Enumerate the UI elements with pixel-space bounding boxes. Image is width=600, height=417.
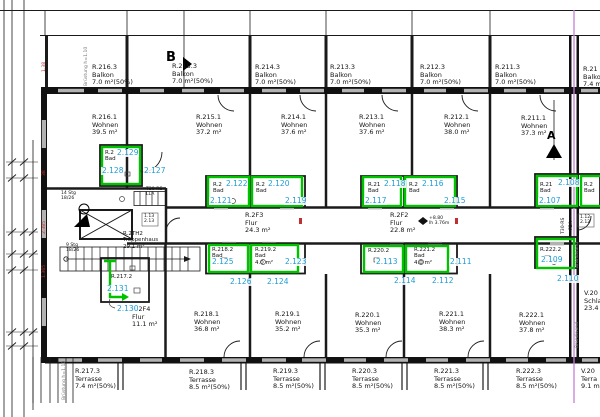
door-label-1-12: 1.122.12	[580, 215, 590, 225]
dimension-text: 38	[42, 170, 47, 176]
bath-label-r216: R.2Bad	[105, 150, 116, 163]
room-label-v-terrasse: V.20Terra9.1 m	[581, 368, 600, 391]
room-label-r222-3: R.222.3Terrasse8.5 m²(50%)	[516, 368, 557, 391]
room-label-r219-3: R.219.3Terrasse8.5 m²(50%)	[273, 368, 314, 391]
tag-2-116[interactable]: 2.116	[421, 180, 444, 188]
tag-2-131[interactable]: 2.131	[106, 285, 129, 293]
tag-2-118[interactable]: 2.118	[383, 180, 406, 188]
room-label-r215-1: R.215.1Wohnen37.2 m²	[196, 114, 222, 137]
tag-2-126[interactable]: 2.126	[229, 278, 252, 286]
room-label-r221-1: R.221.1Wohnen38.3 m²	[439, 311, 465, 334]
room-label-r213-3: R.213.3Balkon7.0 m²(50%)	[330, 64, 371, 87]
room-label-r221-3: R.221.3Terrasse8.5 m²(50%)	[434, 368, 475, 391]
tag-2-130[interactable]: 2.130	[116, 305, 139, 313]
bath-label-r221-2: R.221.2Bad4.0 m²	[414, 247, 435, 266]
tag-2-115[interactable]: 2.115	[443, 197, 466, 205]
bath-label-right-top: R.21Bad	[540, 182, 552, 195]
room-label-r216-3: R.216.3Balkon7.0 m²(50%)	[92, 64, 133, 87]
highlight-arrow-2131[interactable]	[122, 293, 129, 301]
room-label-r218-1: R.218.1Wohnen36.8 m²	[194, 311, 220, 334]
room-label-r214-1: R.214.1Wohnen37.6 m²	[281, 114, 307, 137]
dimension-text: 1.365	[42, 265, 47, 278]
room-label-r214-3: R.214.3Balkon7.0 m²(50%)	[255, 64, 296, 87]
tag-2-111[interactable]: 2.111	[449, 258, 472, 266]
tag-2-122[interactable]: 2.122	[225, 180, 248, 188]
section-marker-b: B	[166, 50, 176, 65]
bath-label-f3-right: R.2Bad	[256, 182, 267, 195]
room-label-r212-1: R.212.1Wohnen38.0 m²	[444, 114, 470, 137]
bath-label-r217-2: R.217.2	[111, 274, 132, 280]
tag-2-124[interactable]: 2.124	[266, 278, 289, 286]
brandwand-label: Brandwand	[575, 242, 580, 268]
room-label-r211-3: R.211.3Balkon7.0 m²(50%)	[495, 64, 536, 87]
bath-label-r219-2: R.219.2Bad4.0 m²	[255, 247, 276, 266]
section-marker-a: A	[547, 129, 556, 142]
door-label-fsa: FSA	[569, 221, 574, 230]
bruestung-label: Brüstung h=1.10	[84, 47, 89, 86]
room-label-r222-1: R.222.1Wohnen37.8 m²	[519, 312, 545, 335]
dimension-text: 1.38	[42, 62, 47, 72]
room-label-v-schlafen: V.20Schla23.4 m	[584, 290, 600, 313]
room-label-r217-3: R.217.3Terrasse7.4 m²(50%)	[75, 368, 116, 391]
tag-2-127[interactable]: 2.127	[143, 167, 166, 175]
level-marker-label: +8.80lh 3.76m	[429, 216, 449, 226]
bruestung-label: Brüstung h=1.10	[62, 361, 67, 400]
room-label-r213-1: R.213.1Wohnen37.6 m²	[359, 114, 385, 137]
room-label-r220-3: R.220.3Terrasse8.5 m²(50%)	[352, 368, 393, 391]
tag-2-119[interactable]: 2.119	[284, 197, 307, 205]
tag-2-112[interactable]: 2.112	[431, 277, 454, 285]
stair-label-upper: 14 Stg18/26	[61, 191, 76, 201]
tag-2-107[interactable]: 2.107	[538, 197, 561, 205]
bath-label-r220-2: R.220.2	[368, 248, 389, 254]
tag-2-125[interactable]: 2.125	[211, 258, 234, 266]
bath-label-f2-left: R.21Bad	[368, 182, 380, 195]
tag-2-120[interactable]: 2.120	[267, 180, 290, 188]
tag-2-109[interactable]: 2.109	[540, 256, 563, 264]
tag-2-110[interactable]: 2.110	[556, 275, 579, 283]
level-marker-icon	[418, 217, 428, 225]
bath-walls	[100, 145, 600, 302]
detector-mark	[299, 218, 302, 224]
room-label-r216-1: R.216.1Wohnen39.5 m²	[92, 114, 118, 137]
tag-2-129[interactable]: 2.129	[116, 149, 139, 157]
tag-2-114[interactable]: 2.114	[393, 277, 416, 285]
tag-2-108[interactable]: 2.108	[557, 179, 580, 187]
room-label-r220-1: R.220.1Wohnen35.3 m²	[355, 312, 381, 335]
dimension-text: 2.385	[42, 221, 47, 234]
room-label-r211-1: R.211.1Wohnen37.3 m²	[521, 115, 547, 138]
room-label-r215-3: R.215.3Balkon7.0 m²(50%)	[172, 63, 213, 86]
tag-2-113[interactable]: 2.113	[375, 258, 398, 266]
tag-2-128[interactable]: 2.128	[101, 167, 124, 175]
room-label-r2f2: R.2F2Flur22.8 m²	[390, 212, 415, 235]
stair-label-lower: 9 Stg18/26	[66, 243, 79, 253]
room-label-r212-3: R.212.3Balkon7.0 m²(50%)	[420, 64, 461, 87]
detector-mark	[455, 218, 458, 224]
brandwand-label: Brandwand	[575, 322, 580, 348]
door-label-t30rs: T30-RSLLA	[146, 187, 162, 197]
room-label-r219-1: R.219.1Wohnen35.2 m²	[275, 311, 301, 334]
bath-label-f2-right: R.2Bad	[409, 182, 420, 195]
bath-label-f3-left: R.2Bad	[213, 182, 224, 195]
bath-label-right-edge: R.2Bad	[584, 182, 595, 195]
tag-2-117[interactable]: 2.117	[364, 197, 387, 205]
tag-2-123[interactable]: 2.123	[284, 258, 307, 266]
door-label-1-13: 1.132.13	[144, 214, 154, 224]
bath-label-r222-2: R.222.2	[540, 247, 561, 253]
room-label-r2th2: R.2TH2Treppenhaus29.1 m²	[123, 231, 158, 250]
room-label-right-balkon: R.21Balkon7.4 m	[583, 66, 600, 89]
room-label-r2f3: R.2F3Flur24.3 m²	[245, 212, 270, 235]
tag-2-121[interactable]: 2.121	[209, 197, 232, 205]
floorplan-canvas: B A R.216.3Balkon7.0 m²(50%) R.215.3Balk…	[0, 0, 600, 417]
door-label-t30rs-right: T30-RS	[561, 218, 566, 234]
room-label-r218-3: R.218.3Terrasse8.5 m²(50%)	[189, 369, 230, 392]
